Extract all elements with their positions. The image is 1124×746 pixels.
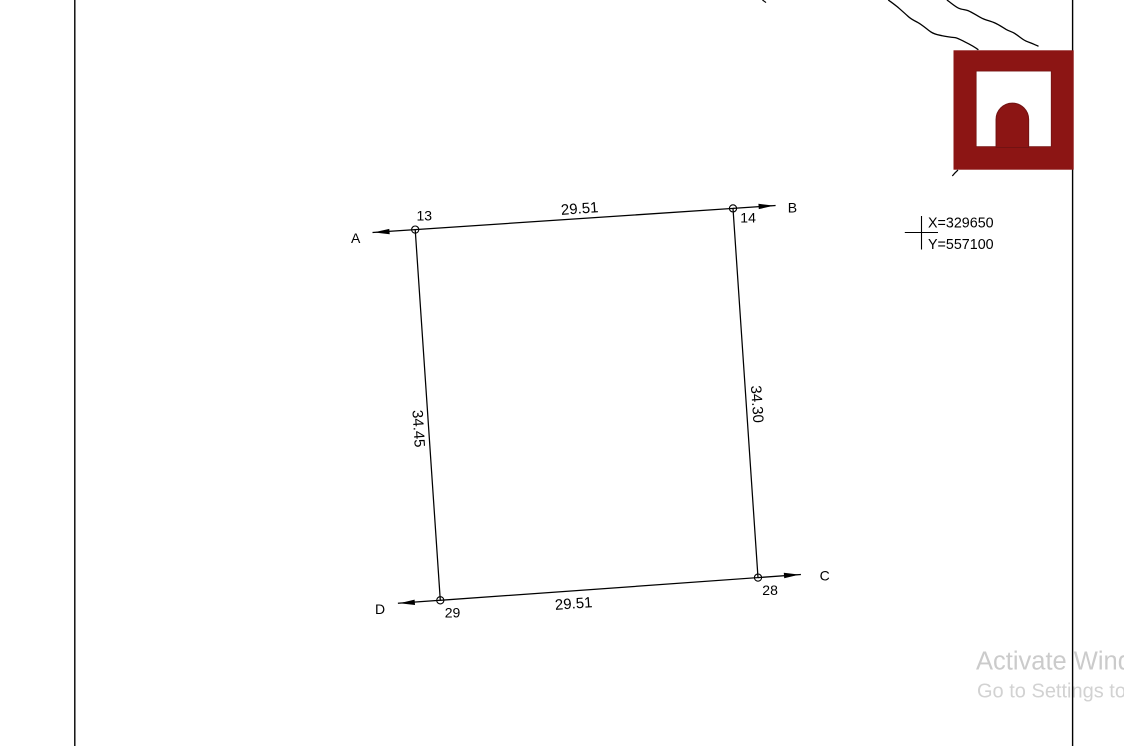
svg-text:C: C (820, 567, 830, 583)
svg-text:Activate Windows: Activate Windows (976, 648, 1124, 676)
svg-text:34.45: 34.45 (408, 409, 428, 448)
svg-text:29.51: 29.51 (560, 199, 599, 219)
svg-text:28: 28 (762, 582, 778, 598)
svg-text:13: 13 (417, 208, 433, 224)
svg-text:Go to Settings to activate Win: Go to Settings to activate Windows. (977, 681, 1124, 703)
svg-text:29: 29 (445, 604, 461, 620)
svg-text:29.51: 29.51 (554, 594, 593, 614)
svg-text:A: A (351, 230, 361, 246)
svg-text:B: B (788, 200, 797, 216)
svg-text:Y=557100: Y=557100 (928, 237, 994, 253)
svg-text:D: D (375, 601, 385, 617)
svg-text:14: 14 (740, 209, 756, 225)
svg-text:34.30: 34.30 (747, 385, 767, 424)
svg-text:X=329650: X=329650 (928, 216, 994, 232)
